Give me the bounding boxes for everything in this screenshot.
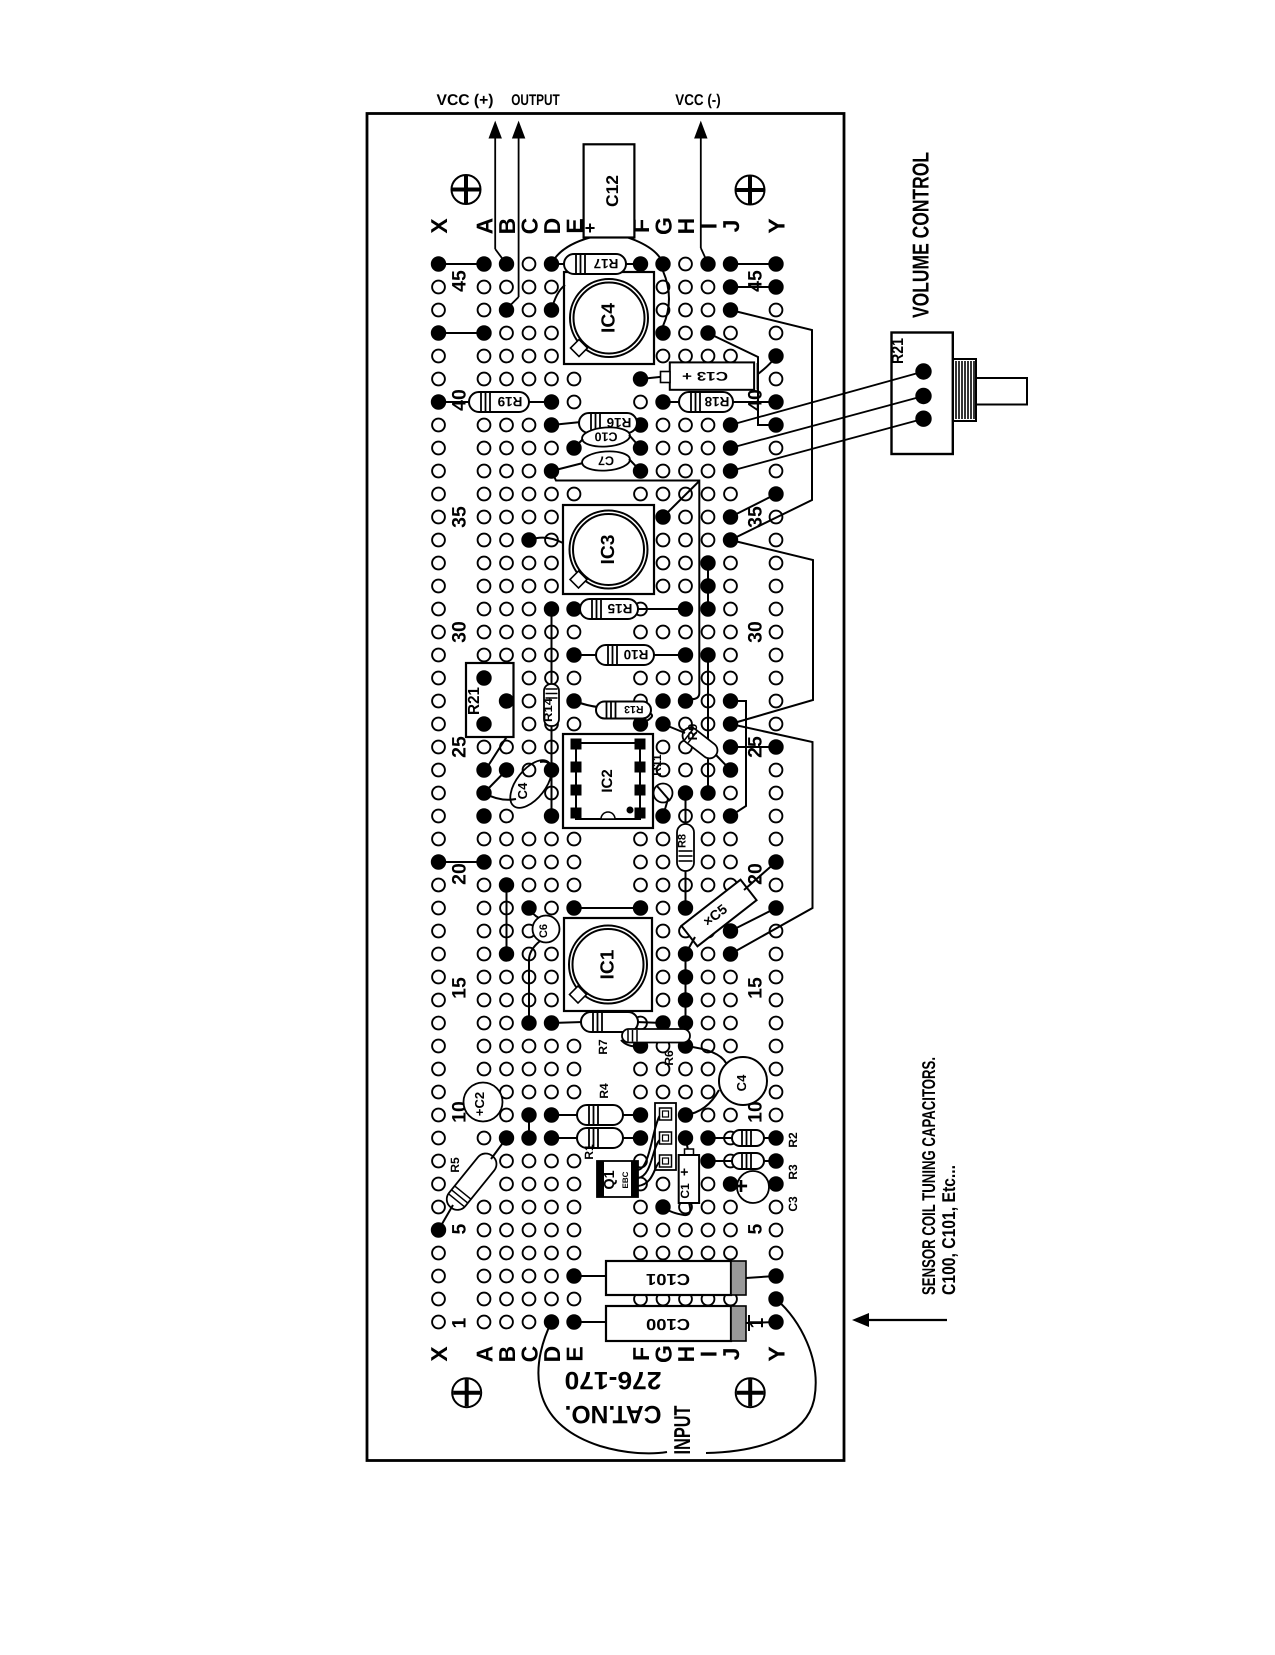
svg-text:C4: C4 bbox=[734, 1074, 749, 1091]
svg-text:CAT.NO.: CAT.NO. bbox=[565, 1400, 662, 1428]
svg-text:5: 5 bbox=[449, 1223, 471, 1234]
svg-text:R10: R10 bbox=[624, 647, 649, 662]
svg-text:R8: R8 bbox=[677, 834, 689, 848]
svg-text:C10: C10 bbox=[594, 430, 617, 444]
svg-text:IC2: IC2 bbox=[599, 769, 616, 792]
svg-text:40: 40 bbox=[745, 389, 767, 411]
svg-text:R17: R17 bbox=[594, 256, 619, 271]
svg-text:E: E bbox=[562, 1346, 588, 1361]
svg-text:C6: C6 bbox=[538, 924, 550, 938]
svg-text:C12: C12 bbox=[603, 175, 622, 207]
svg-text:R7: R7 bbox=[596, 1039, 610, 1055]
svg-text:30: 30 bbox=[745, 621, 767, 643]
svg-text:R3: R3 bbox=[786, 1164, 800, 1180]
svg-text:R14: R14 bbox=[543, 697, 555, 722]
svg-text:C100: C100 bbox=[646, 1315, 690, 1332]
svg-text:R15: R15 bbox=[607, 601, 632, 616]
svg-text:25: 25 bbox=[449, 736, 471, 758]
svg-text:SENSOR COIL TUNING CAPACITORS.: SENSOR COIL TUNING CAPACITORS. bbox=[918, 1057, 939, 1295]
svg-text:30: 30 bbox=[449, 621, 471, 643]
svg-text:R4: R4 bbox=[597, 1083, 611, 1099]
svg-text:C4: C4 bbox=[515, 782, 530, 799]
svg-text:VOLUME CONTROL: VOLUME CONTROL bbox=[908, 152, 934, 318]
svg-text:+: + bbox=[728, 1179, 755, 1193]
svg-text:R13: R13 bbox=[624, 703, 643, 715]
svg-text:IC3: IC3 bbox=[598, 535, 619, 565]
svg-text:R11: R11 bbox=[650, 754, 664, 776]
svg-text:20: 20 bbox=[449, 863, 471, 885]
svg-text:INPUT: INPUT bbox=[669, 1406, 695, 1455]
svg-text:276-170: 276-170 bbox=[565, 1366, 662, 1394]
svg-text:C3: C3 bbox=[786, 1196, 800, 1212]
svg-text:+: + bbox=[580, 223, 600, 234]
svg-text:OUTPUT: OUTPUT bbox=[511, 92, 560, 109]
svg-text:C101: C101 bbox=[646, 1270, 690, 1287]
svg-text:R2: R2 bbox=[786, 1132, 800, 1148]
svg-text:R18: R18 bbox=[704, 394, 729, 409]
svg-text:C13 +: C13 + bbox=[682, 369, 728, 383]
svg-text:R5: R5 bbox=[448, 1157, 462, 1173]
svg-text:VCC (+): VCC (+) bbox=[437, 92, 494, 109]
svg-text:15: 15 bbox=[449, 977, 471, 999]
svg-text:C7: C7 bbox=[598, 454, 614, 468]
svg-text:Y: Y bbox=[764, 218, 790, 233]
svg-text:R9: R9 bbox=[685, 724, 700, 741]
svg-text:VCC (-): VCC (-) bbox=[675, 92, 721, 109]
svg-text:5: 5 bbox=[745, 1223, 767, 1234]
svg-text:R19: R19 bbox=[498, 394, 523, 409]
svg-text:15: 15 bbox=[745, 977, 767, 999]
svg-text:40: 40 bbox=[449, 389, 471, 411]
svg-text:IC4: IC4 bbox=[599, 303, 620, 333]
svg-text:R1: R1 bbox=[582, 1144, 596, 1160]
svg-text:C1: C1 bbox=[678, 1183, 692, 1199]
svg-text:R6: R6 bbox=[662, 1050, 676, 1066]
svg-text:+C2: +C2 bbox=[472, 1092, 487, 1116]
svg-text:45: 45 bbox=[449, 270, 471, 292]
svg-text:35: 35 bbox=[449, 506, 471, 528]
svg-text:R21: R21 bbox=[466, 687, 483, 715]
svg-text:Y: Y bbox=[764, 1346, 790, 1361]
svg-text:Q1: Q1 bbox=[602, 1170, 618, 1189]
svg-text:45: 45 bbox=[745, 270, 767, 292]
svg-text:R21: R21 bbox=[889, 338, 907, 364]
svg-text:C100, C101, Etc...: C100, C101, Etc... bbox=[938, 1165, 959, 1295]
svg-text:J: J bbox=[718, 1348, 744, 1361]
svg-text:IC1: IC1 bbox=[598, 949, 619, 979]
svg-text:EBC: EBC bbox=[621, 1171, 630, 1188]
svg-text:X: X bbox=[426, 218, 452, 234]
svg-text:J: J bbox=[718, 220, 744, 233]
svg-text:X: X bbox=[426, 1346, 452, 1362]
svg-text:1: 1 bbox=[449, 1317, 471, 1328]
svg-text:+: + bbox=[676, 1168, 692, 1176]
